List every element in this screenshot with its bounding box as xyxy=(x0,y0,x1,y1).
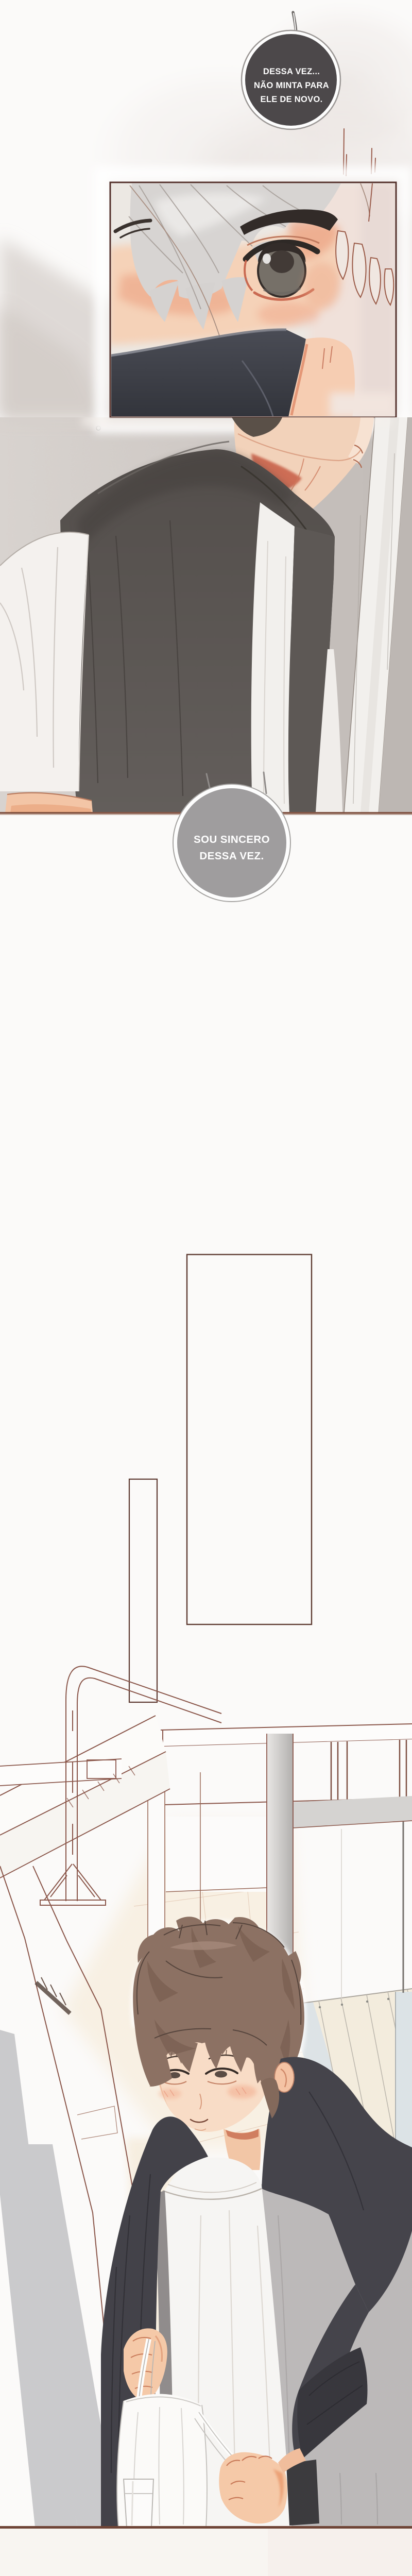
svg-text:DESSA VEZ...: DESSA VEZ... xyxy=(263,67,320,76)
svg-text:DESSA VEZ.: DESSA VEZ. xyxy=(199,850,264,862)
svg-text:NÃO MINTA PARA: NÃO MINTA PARA xyxy=(254,80,329,90)
svg-text:ELE DE NOVO.: ELE DE NOVO. xyxy=(261,95,323,104)
svg-text:SOU SINCERO: SOU SINCERO xyxy=(194,834,270,845)
